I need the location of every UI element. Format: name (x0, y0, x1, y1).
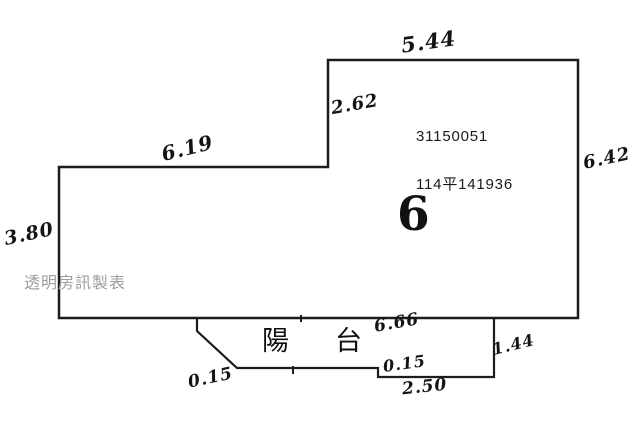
watermark-text: 透明房訊製表 (24, 276, 126, 292)
dimension-balcony-bottom-edge: 2.50 (401, 377, 448, 399)
registration-block: 31150051 114平141936 (416, 97, 513, 225)
floor-plan-canvas: 5.44 2.62 6.19 6.42 3.80 6.66 1.44 0.15 … (0, 0, 640, 443)
floor-plan-outline (0, 0, 640, 443)
registration-date-code: 114平141936 (416, 177, 513, 193)
balcony-label: 陽台 (262, 328, 408, 355)
registration-number: 31150051 (416, 129, 513, 145)
unit-number: 6 (397, 191, 430, 238)
